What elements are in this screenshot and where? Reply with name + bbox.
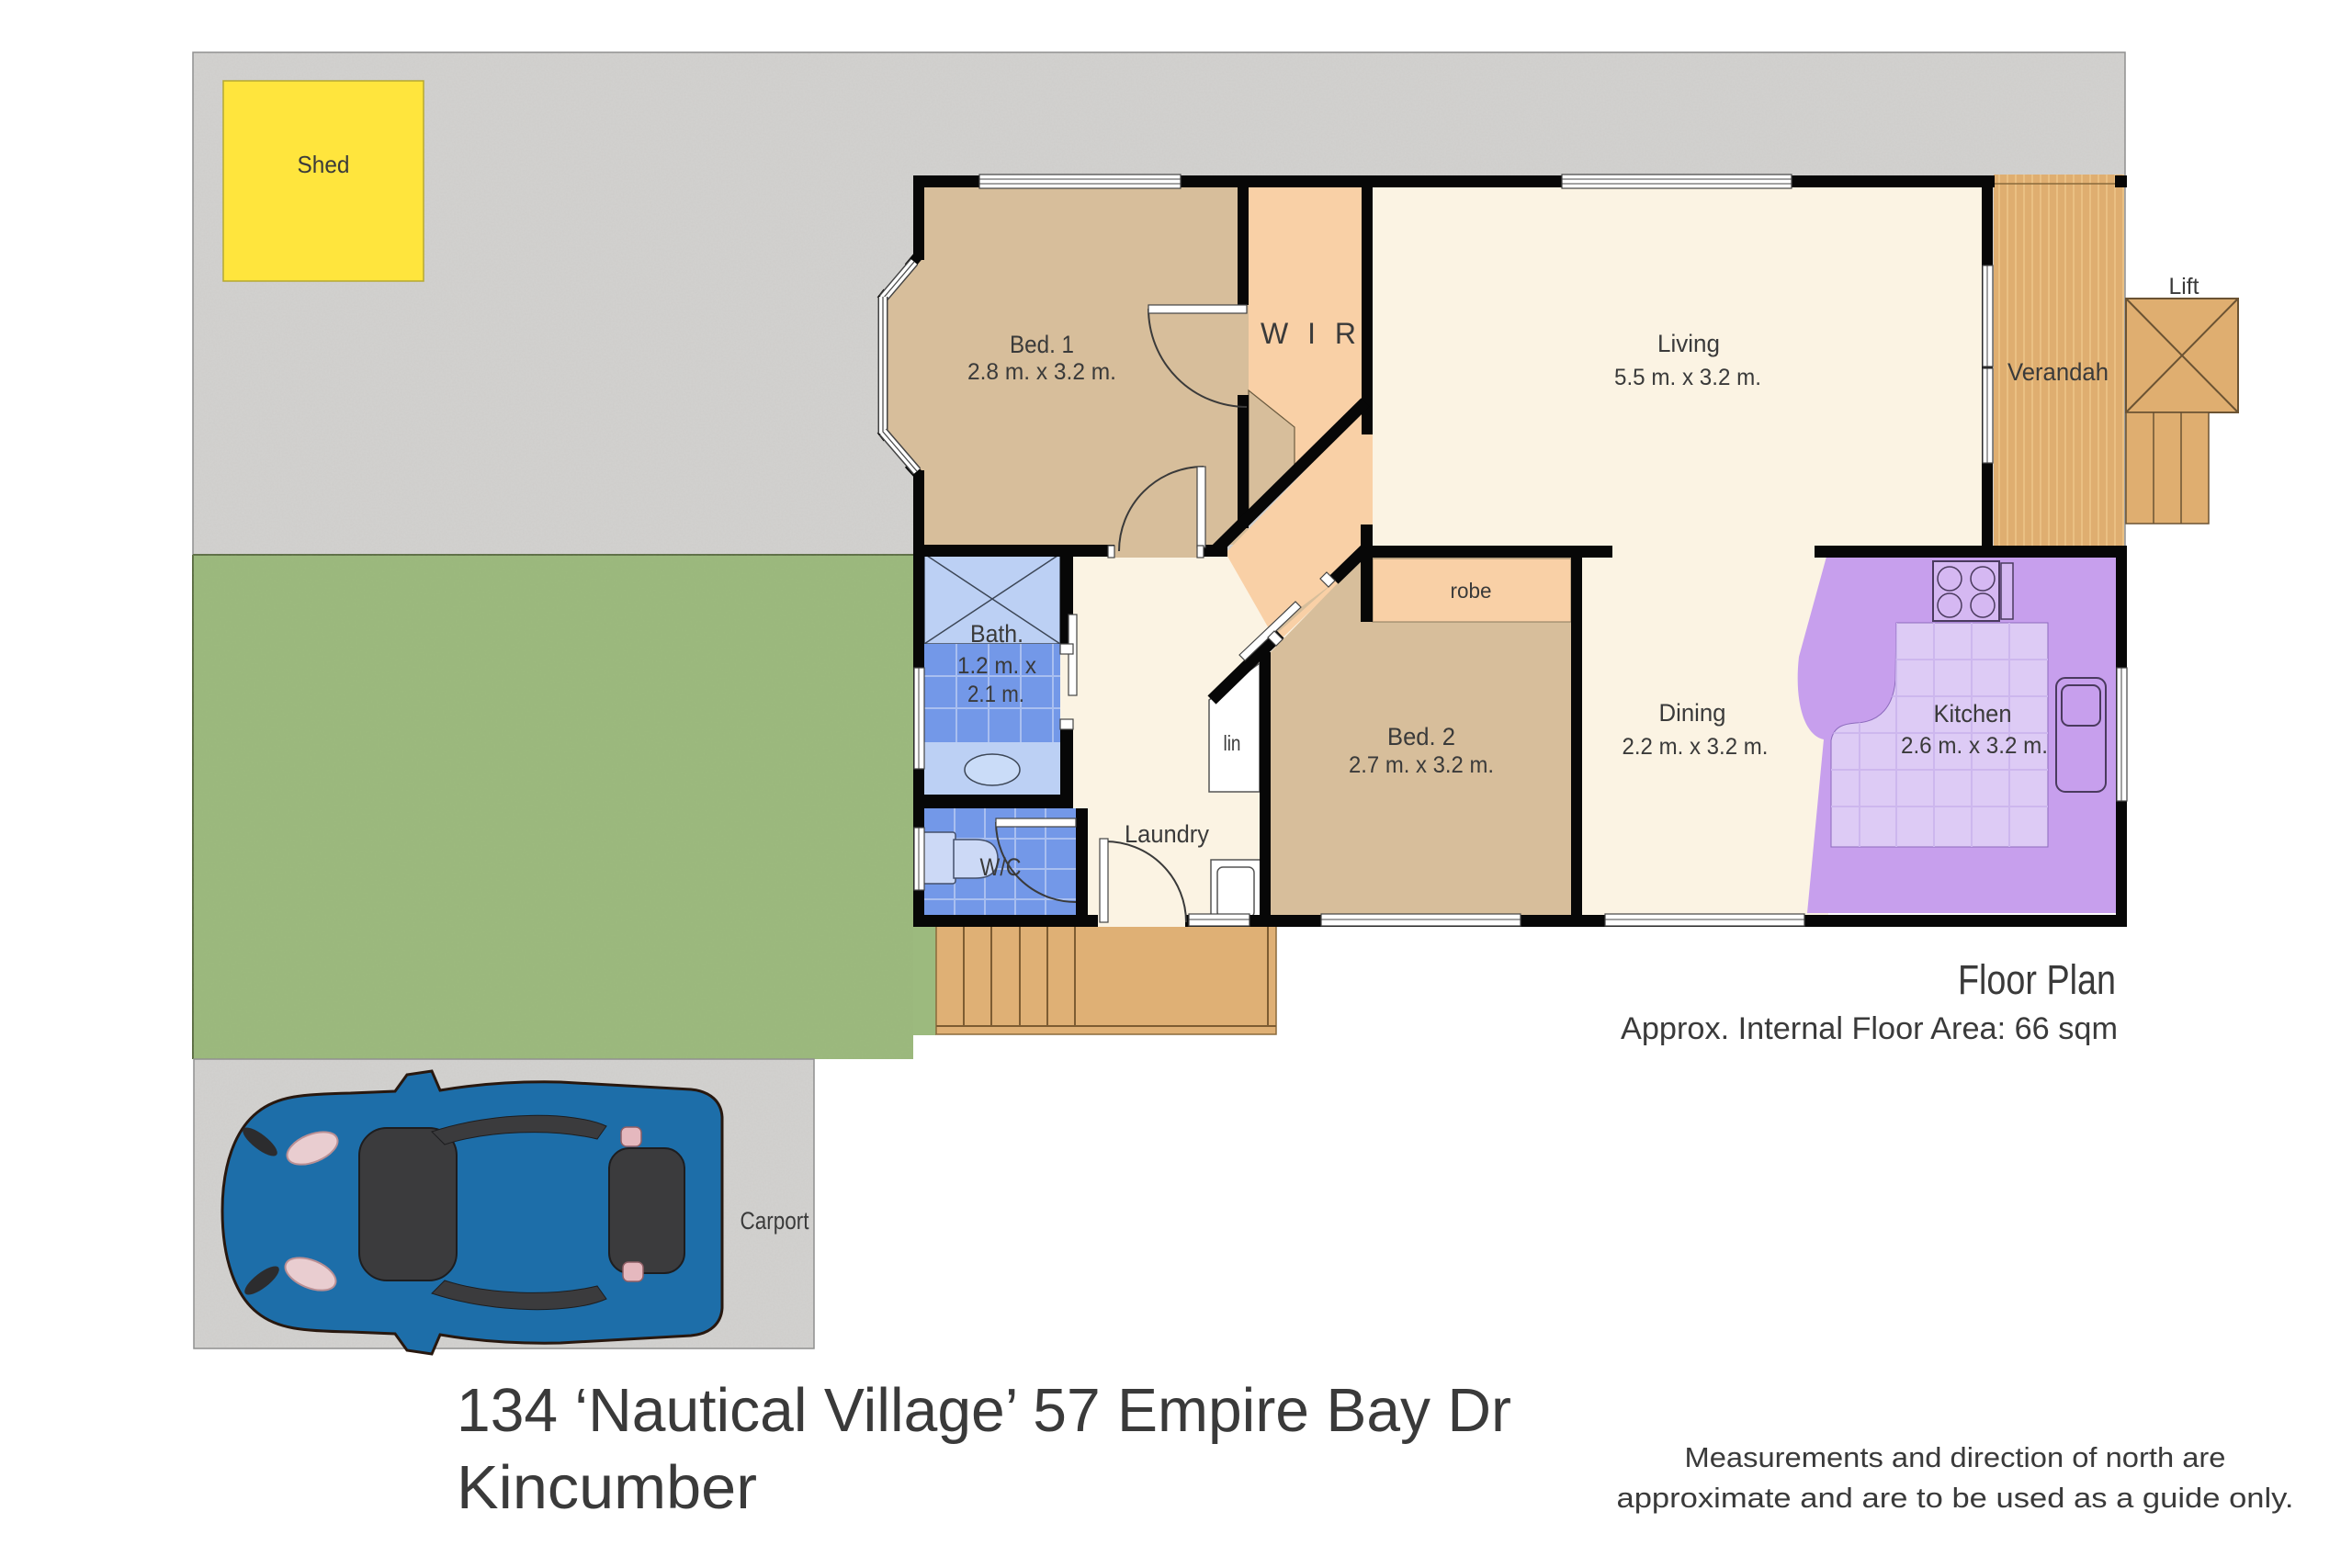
svg-text:5.5 m. x 3.2 m.: 5.5 m. x 3.2 m. <box>1614 365 1761 390</box>
svg-text:Kincumber: Kincumber <box>457 1453 757 1522</box>
svg-text:2.7 m. x 3.2 m.: 2.7 m. x 3.2 m. <box>1349 752 1494 778</box>
svg-text:2.2 m. x 3.2 m.: 2.2 m. x 3.2 m. <box>1623 734 1769 760</box>
svg-text:Dining: Dining <box>1659 699 1726 727</box>
svg-text:Kitchen: Kitchen <box>1934 700 2012 728</box>
svg-text:2.1 m.: 2.1 m. <box>967 682 1024 707</box>
svg-text:Laundry: Laundry <box>1125 820 1209 848</box>
svg-text:2.8 m. x 3.2 m.: 2.8 m. x 3.2 m. <box>967 359 1116 385</box>
svg-text:Approx. Internal Floor Area: 6: Approx. Internal Floor Area: 66 sqm <box>1621 1011 2118 1046</box>
svg-text:Lift: Lift <box>2169 274 2199 299</box>
svg-text:lin: lin <box>1224 731 1241 755</box>
svg-text:Floor Plan: Floor Plan <box>1958 956 2116 1003</box>
svg-text:134 ‘Nautical Village’ 57 Empi: 134 ‘Nautical Village’ 57 Empire Bay Dr <box>457 1376 1511 1445</box>
svg-text:Shed: Shed <box>298 151 350 178</box>
svg-text:1.2 m. x: 1.2 m. x <box>957 653 1036 679</box>
svg-text:WIR: WIR <box>1261 317 1356 350</box>
svg-text:Verandah: Verandah <box>2007 358 2109 386</box>
svg-text:Bath.: Bath. <box>970 620 1023 648</box>
svg-text:Carport: Carport <box>741 1207 809 1235</box>
svg-text:robe: robe <box>1451 579 1492 603</box>
svg-text:Living: Living <box>1657 330 1720 357</box>
svg-text:approximate and are to be used: approximate and are to be used as a guid… <box>1617 1482 2294 1514</box>
svg-text:Bed. 1: Bed. 1 <box>1010 331 1074 358</box>
svg-text:Measurements and direction of: Measurements and direction of north are <box>1685 1441 2226 1473</box>
svg-text:W/C: W/C <box>980 853 1022 881</box>
svg-text:Bed. 2: Bed. 2 <box>1387 723 1455 750</box>
svg-text:2.6 m. x 3.2 m.: 2.6 m. x 3.2 m. <box>1901 733 2048 759</box>
